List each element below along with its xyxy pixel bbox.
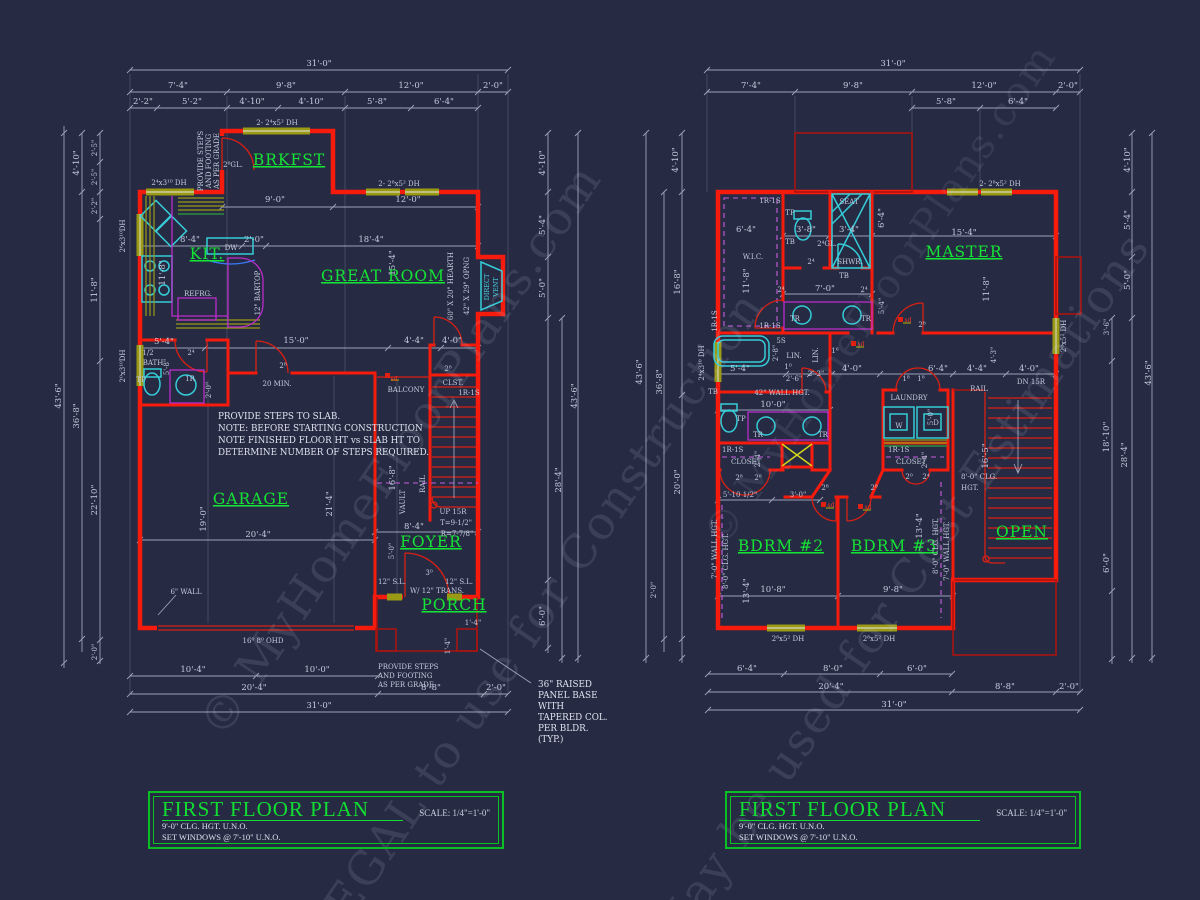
dim-label: 2- 2⁸x5² DH [979,180,1020,188]
dim-label: 8'-4" [404,522,424,532]
dim-label: 7'-4" [741,81,761,91]
dim-label: 8'-8" [995,682,1015,692]
sidelight-window [387,594,402,601]
dim-label: 1R-1S [888,446,910,454]
dim-label: 6'-0" [907,664,927,674]
dim-label: 20'-4" [818,682,843,692]
smoke-detector-icon [851,341,856,346]
plan-note-windows: SET WINDOWS @ 7'-10" U.N.O. [162,832,490,843]
dim-label: LIN. [786,352,801,360]
note-label: (TYP.) [538,734,563,745]
dim-label: TB [785,238,795,246]
dim-label: 10'-8" [760,585,785,595]
smoke-detector-label: sd [858,341,865,348]
dim-label: RAIL [419,475,427,493]
dim-label: LAUNDRY [890,394,927,402]
title-block-left: FIRST FLOOR PLAN SCALE: 1/4"=1'-0" 9'-0"… [148,791,504,849]
dim-label: 16⁰ 8⁰ OHD [243,637,284,645]
room-label-master: MASTER [925,243,1002,261]
dim-label: 2'-8" [772,345,780,361]
dim-label: 2'-2" [91,198,99,214]
plan-title: FIRST FLOOR PLAN [162,798,403,821]
note-label: DETERMINE NUMBER OF STEPS REQUIRED. [218,448,429,458]
note-label: NOTE: BEFORE STARTING CONSTRUCTION [218,424,423,434]
dim-label: 22'-10" [90,485,100,516]
room-label-open: OPEN [996,523,1048,541]
dim-label: 20 MIN. [263,380,292,388]
dim-label: UP 15R [439,508,467,516]
dim-label: 6'-4" [1008,97,1028,107]
dim-label: 2⁴x3¹⁰ DH [698,345,706,380]
dim-label: 8'-0" CLG. HGT. [932,518,940,574]
dim-label: W.I.C. [743,253,764,261]
dim-label: 5'-8" [367,97,387,107]
plan-note-windows: SET WINDOWS @ 7'-10" U.N.O. [739,832,1067,843]
dim-label: LIN. [812,347,820,362]
dim-label: VENT [492,277,500,298]
dim-label: 6'-4" [736,225,756,235]
dim-label: 19'-0" [199,506,209,531]
dim-label: 4'-0" [442,336,462,346]
plan-note-ceiling: 9'-0" CLG. HGT. U.N.O. [162,821,490,832]
dim-label: 4'-10" [72,150,82,175]
dim-label: 15'-4" [951,228,976,238]
right-text-layer: 31'-0"7'-4"9'-8"12'-0"2'-0"5'-8"6'-4"2- … [635,59,1154,710]
dim-label: 1R-1S [722,446,744,454]
title-block-right: FIRST FLOOR PLAN SCALE: 1/4"=1'-0" 9'-0"… [725,791,1081,849]
dim-label: 2⁴ [777,286,784,294]
dim-label: 12'-0" [971,81,996,91]
blueprint-page: 31'-0"7'-4"9'-8"12'-0"2'-0"2'-2"5'-2"4'-… [0,0,1200,900]
garage-door-gap [157,623,355,633]
dim-label: 4'-10" [1123,147,1133,172]
dim-label: 6'-4" [434,97,454,107]
dim-label: 18'-10" [1102,422,1112,453]
dim-label: T=9-1/2" [440,519,472,527]
dim-label: 1'-4" [465,619,481,627]
floor-plan-drawing: 31'-0"7'-4"9'-8"12'-0"2'-0"2'-2"5'-2"4'-… [0,0,1200,900]
dim-label: 2'-0" [205,382,213,398]
porch-column [457,629,477,651]
dim-label: 2'-0" [91,644,99,660]
dim-label: BALCONY [388,386,425,394]
smoke-detector-icon [898,317,903,322]
dim-label: 2'-0" [244,235,264,245]
dim-label: 5S [776,337,785,345]
note-label: WITH [538,702,564,712]
dim-label: 1/2 [142,349,153,357]
dim-label: PROVIDE STEPS [197,131,205,192]
dim-label: 13'-4" [742,578,752,603]
smoke-detector-icon [858,504,863,509]
dim-label: 5'-4" [538,215,548,235]
dim-label: 2'-0" [1058,81,1078,91]
dim-label: 1R-1S [711,310,719,332]
bdrm2-door [812,497,836,521]
dim-label: AND FOOTING [377,672,433,680]
smoke-detector-label: sd [865,504,872,511]
dim-label: 5'-4" [730,364,750,374]
note-label: TAPERED COL. [538,713,608,723]
right-plan: 31'-0"7'-4"9'-8"12'-0"2'-0"5'-8"6'-4"2- … [635,59,1155,713]
dim-label: 2'-5" [91,169,99,185]
dim-label: 16'-8" [388,465,398,490]
smoke-detector-label: sd [391,376,398,383]
dim-label: 2⁸x5² DH [772,635,804,643]
dim-label: 1R-1S [458,389,480,397]
dim-label: 9'-8" [276,81,296,91]
smoke-detector-label: sd [828,502,835,509]
dim-label: 2- 2⁴x5² DH [256,119,297,127]
dim-label: 2⁰x3¹⁰DH [119,350,127,383]
dim-label: 2'-0" [650,582,658,598]
dim-label: 12" S.L. [378,578,406,586]
dim-label: 1R [185,375,195,383]
dim-label: TP [736,415,746,423]
breakfast-table [140,200,171,231]
note-label: PANEL BASE [538,691,598,701]
dim-label: D [933,419,939,427]
dim-label: 11'-8" [90,277,100,302]
dim-label: 13'-4" [915,513,925,538]
dim-label: 31'-0" [306,59,331,69]
dim-label: 21'-4" [325,491,335,516]
dim-label: 43'-6" [54,383,64,408]
plan-title: FIRST FLOOR PLAN [739,798,980,821]
dim-label: 2'-4" [754,451,762,467]
room-label-brkfst: BRKFST [253,151,325,169]
dim-label: TP [136,376,146,384]
dim-label: 7'-0" [815,284,835,294]
dim-label: REFRG. [184,290,212,298]
toilet-icon [721,410,737,432]
dim-label: 12'-0" [395,195,420,205]
dim-label: 10'-0" [760,400,785,410]
dim-label: 2⁸x5² DH [1060,320,1068,352]
dim-label: 2⁸ [918,321,925,329]
dim-label: 2'-6" [786,375,802,383]
dim-label: 15'-0" [283,336,308,346]
dim-label: 2⁸ [735,474,742,482]
dim-label: 2'-0" [486,683,506,693]
dim-label: 6'-4" [928,364,948,374]
note-label: 36" RAISED [538,680,592,690]
note-label: PROVIDE STEPS TO SLAB. [218,412,340,422]
refrigerator [178,298,216,320]
dim-label: 4'-10" [538,150,548,175]
dim-label: 36'-8" [655,369,665,394]
dim-label: 7'-4" [168,81,188,91]
dim-label: 2'-0" [1059,682,1079,692]
room-label-great-room: GREAT ROOM [321,267,445,285]
dim-label: TB [708,388,718,396]
dim-label: 10'-4" [180,665,205,675]
dim-label: 5'-0" [388,543,396,559]
dim-label: 2⁸ [870,484,877,492]
dim-label: 15'-4" [388,250,398,275]
dim-label: 6'-0" [538,606,548,626]
chase-x [782,444,812,466]
dim-label: 8'-4" [180,235,200,245]
dim-label: AS PER GRADE [213,133,221,190]
dim-label: 4'-10" [239,97,264,107]
smoke-detector-icon [821,502,826,507]
sink-icon [843,306,861,324]
dim-label: 5'-0" [538,278,548,298]
dim-label: DN 15R [1017,378,1046,386]
dim-label: 12" S.L. [445,578,473,586]
room-label-bdrm2: BDRM #2 [738,537,824,555]
dim-label: R=7-7/8" [441,530,473,538]
dim-label: 12" BARTOP [254,270,262,315]
room-label-porch: PORCH [421,596,486,614]
dim-label: HGT. [961,484,979,492]
dim-label: 4'-0" [842,364,862,374]
stairs-down-arrow [1014,400,1022,473]
note-label: NOTE FINISHED FLOOR HT vs SLAB HT TO [218,436,420,446]
dim-label: 10'-0" [304,665,329,675]
dim-label: 9'-8" [883,585,903,595]
dim-label: 5'-4" [878,298,886,314]
room-label-kitchen: KIT. [190,245,225,263]
dim-label: 2⁸ [821,484,828,492]
note-label: PER BLDR. [538,724,589,734]
dim-label: 9'-8" [843,81,863,91]
chimney-outline [795,133,912,192]
dim-label: 3⁰ [425,569,432,577]
dim-label: 8'-0" [823,664,843,674]
dim-label: 2⁴ [922,473,929,481]
dim-label: 43'-6" [570,383,580,408]
dim-label: 4'-10" [671,147,681,172]
dim-label: AND FOOTING [205,133,213,189]
dim-label: 4'-0" [1019,364,1039,374]
dim-label: 1R-1S [759,197,781,205]
dim-label: 11'-8" [742,268,752,293]
dim-label: 16'-8" [673,269,683,294]
dim-label: 31'-0" [880,59,905,69]
dim-label: 1⁸ [902,375,909,383]
dim-label: 42" X 29" OPNG [463,257,471,315]
dim-label: 8'-8" [421,683,441,693]
dim-label: 2⁸ [279,362,286,370]
dim-label: 2'-2" [133,97,153,107]
dim-label: 3'-6" [1103,319,1111,335]
dim-label: 60" X 20" HEARTH [447,252,455,320]
dim-label: SHWR. [837,258,863,266]
dim-label: TP [785,209,795,217]
dim-label: 8'-0" CLG. HGT. [722,533,730,589]
room-label-bdrm3: BDRM #3 [851,537,937,555]
dim-label: 2- 2⁸x5² DH [378,180,419,188]
dim-label: 4'-3" [990,347,998,363]
dim-label: 20'-4" [245,530,270,540]
dim-label: 43'-6" [635,359,645,384]
dim-label: 2'-0" [483,81,503,91]
smoke-detector-icon [385,373,390,378]
dim-label: TR [861,315,872,323]
dim-label: 6'-0" [1102,553,1112,573]
porch-column [376,629,396,651]
plan-scale: SCALE: 1/4"=1'-0" [996,808,1067,818]
dim-label: 7'-0" WALL HGT. [711,519,719,579]
dim-label: RAIL [970,385,988,393]
dim-label: 5'-4" [154,337,174,347]
fireplace-chase-outline [1056,257,1081,314]
dim-label: 6" WALL [170,588,201,596]
dim-label: 1⁶ [831,347,838,355]
dim-label: 2⁶x3¹⁰DH [119,220,127,253]
dim-label: 5'-0" [1123,270,1133,290]
dim-label: 1'-4" [444,638,452,654]
dim-label: 18'-4" [358,235,383,245]
dim-label: 2⁸GL. [223,161,243,169]
dim-label: 36'-8" [72,403,82,428]
dim-label: 2'-5" [91,140,99,156]
dim-label: 3'-4" [839,225,859,235]
dim-label: 5'-10 1/2" [723,491,757,499]
dim-label: 2⁸ [444,365,451,373]
dim-label: SEAT [839,198,859,206]
dim-label: CLST. [443,379,464,387]
dim-label: DIRECT [483,273,491,300]
left-stairs [431,387,476,508]
porch-roof-outline [953,580,1056,655]
dim-label: BATH [143,359,164,367]
dim-label: 2⁰ [905,473,912,481]
dim-label: W [895,422,903,430]
dim-label: 4'-10" [298,97,323,107]
dim-label: PROVIDE STEPS [378,663,439,671]
dim-label: 4'-4" [404,336,424,346]
dim-label: 20'-0" [673,469,683,494]
dim-label: 5'-4" [1123,210,1133,230]
dim-label: 7'-0" WALL HGT. [943,521,951,581]
dim-label: TB [839,272,849,280]
dim-label: 12'-0" [398,81,423,91]
dim-label: 5'-2" [182,97,202,107]
dim-label: 2⁴GL. [817,240,837,248]
dim-label: 31'-0" [306,701,331,711]
plan-scale: SCALE: 1/4"=1'-0" [419,808,490,818]
dim-label: 43'-6" [1144,360,1154,385]
dim-label: 2'-2" [808,370,824,378]
dim-label: 42" WALL HGT. [754,389,809,397]
dim-label: 1⁸ [917,375,924,383]
plan-note-ceiling: 9'-0" CLG. HGT. U.N.O. [739,821,1067,832]
title-block-inner-border: FIRST FLOOR PLAN SCALE: 1/4"=1'-0" 9'-0"… [153,796,499,844]
dim-label: 1⁰ [784,363,791,371]
dim-label: VAULT [399,490,407,516]
dim-label: 28'-4" [1120,442,1130,467]
left-plan: 31'-0"7'-4"9'-8"12'-0"2'-0"2'-2"5'-2"4'-… [54,59,608,745]
dim-label: 5'-8" [936,97,956,107]
room-label-garage: GARAGE [213,490,289,508]
dim-label: DW [225,244,239,252]
dim-label: 2⁴ [860,286,867,294]
dim-label: 11'-8" [158,260,168,285]
dim-label: 9'-0" [265,195,285,205]
dim-label: 2'-4" [921,452,929,468]
dim-label: 6'-4" [737,664,757,674]
smoke-detector-label: sd [905,317,912,324]
dim-label: 16'-5" [981,443,991,468]
dim-label: 5'-8" [163,359,171,375]
dim-label: 1R-1S [759,322,781,330]
dim-label: 28'-4" [554,467,564,492]
title-block-inner-border: FIRST FLOOR PLAN SCALE: 1/4"=1'-0" 9'-0"… [730,796,1076,844]
dim-label: 11'-8" [982,276,992,301]
dim-label: TR [790,315,801,323]
dim-label: TR [818,431,829,439]
dim-label: 2⁴ [807,258,814,266]
dim-label: W/ 12" TRANS. [410,587,464,595]
dim-label: 3'-8" [796,225,816,235]
dim-label: 3'-0" [790,491,806,499]
dim-label: 2⁸x5² DH [863,635,895,643]
dim-label: 2⁴ [187,349,194,357]
dim-label: 6'-4" [877,208,887,228]
dim-label: 2⁸ [754,474,761,482]
dim-label: 4'-4" [967,364,987,374]
dim-label: TR [753,431,764,439]
dim-label: 8'-0" CLG. [961,473,997,481]
dim-label: 2⁴x3¹⁰ DH [151,179,186,187]
dim-label: 31'-0" [881,700,906,710]
dim-label: 20'-4" [241,683,266,693]
